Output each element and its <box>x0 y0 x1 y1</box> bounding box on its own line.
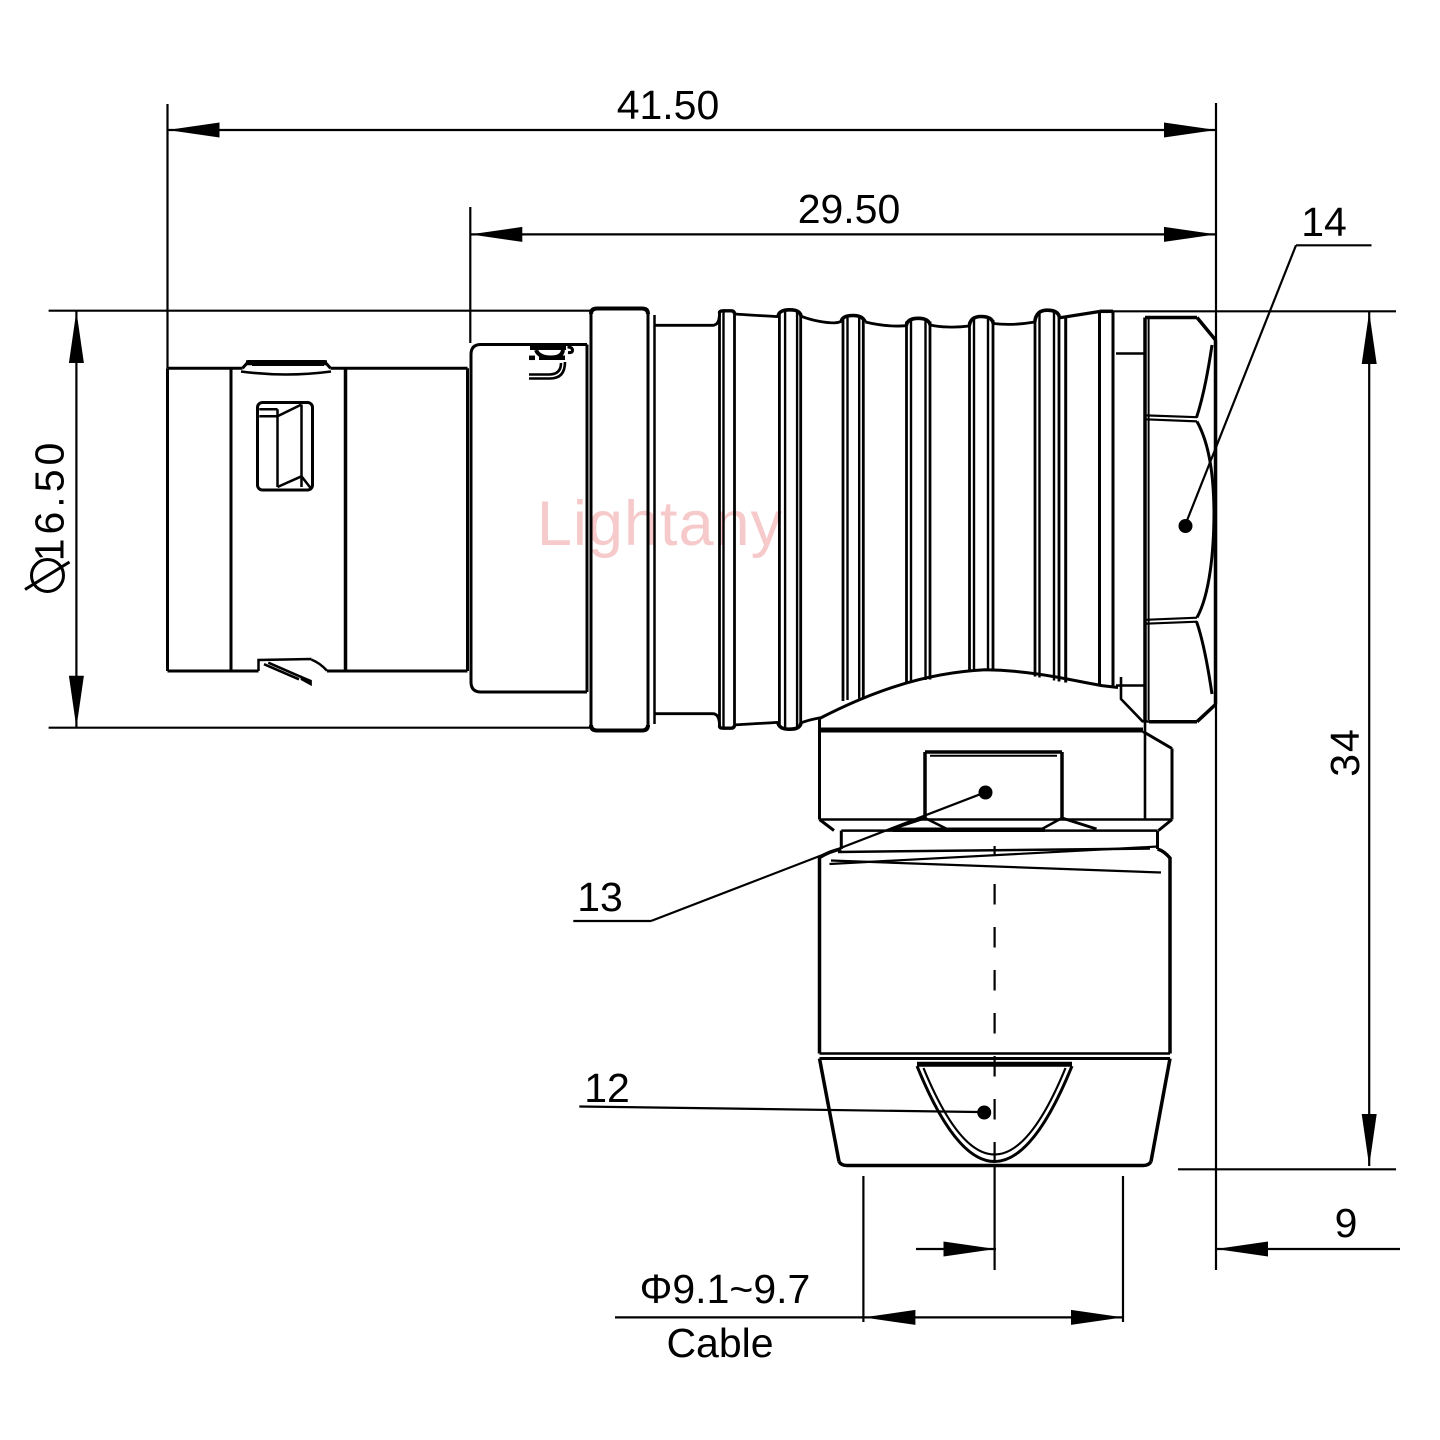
svg-text:Lightany: Lightany <box>537 489 783 559</box>
svg-text:9: 9 <box>1335 1200 1358 1246</box>
svg-text:Φ9.1~9.7: Φ9.1~9.7 <box>640 1266 811 1312</box>
svg-text:13: 13 <box>577 874 623 920</box>
svg-text:12: 12 <box>584 1065 630 1111</box>
svg-text:16.50: 16.50 <box>27 439 73 562</box>
svg-text:34: 34 <box>1322 727 1368 777</box>
svg-text:Cable: Cable <box>666 1320 773 1366</box>
svg-text:29.50: 29.50 <box>798 186 901 232</box>
svg-text:41.50: 41.50 <box>617 82 720 128</box>
svg-text:14: 14 <box>1301 199 1347 245</box>
